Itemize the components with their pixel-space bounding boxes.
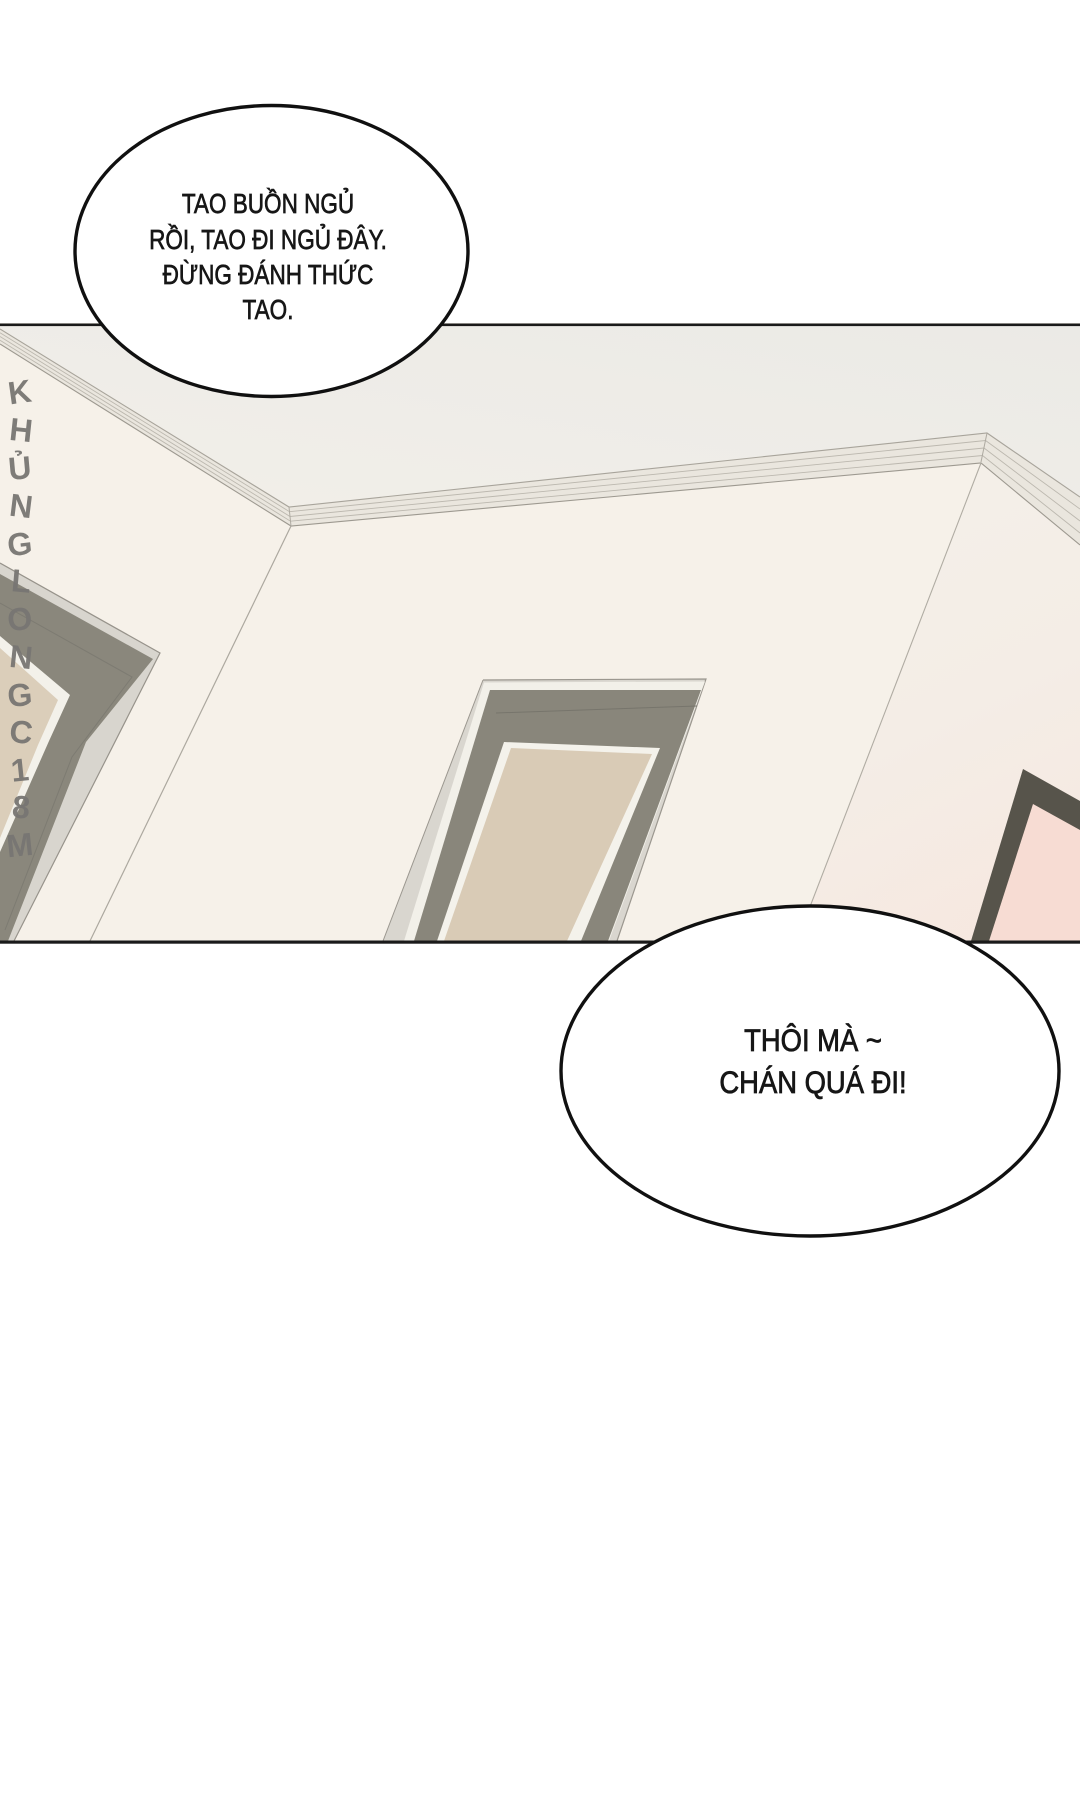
svg-text:N: N	[8, 487, 35, 526]
svg-text:8: 8	[11, 788, 32, 825]
svg-text:Ủ: Ủ	[7, 449, 33, 487]
svg-text:CHÁN QUÁ ĐI!: CHÁN QUÁ ĐI!	[719, 1065, 906, 1100]
svg-text:L: L	[10, 562, 33, 600]
svg-text:N: N	[8, 638, 35, 676]
svg-text:TAO BUỒN NGỦ: TAO BUỒN NGỦ	[182, 187, 354, 220]
svg-text:TAO.: TAO.	[243, 295, 294, 326]
svg-text:ĐỪNG ĐÁNH THỨC: ĐỪNG ĐÁNH THỨC	[163, 259, 374, 291]
svg-text:RỒI, TAO ĐI NGỦ ĐÂY.: RỒI, TAO ĐI NGỦ ĐÂY.	[149, 223, 387, 256]
svg-text:G: G	[6, 676, 34, 714]
svg-text:O: O	[5, 600, 34, 639]
svg-text:K: K	[6, 373, 34, 412]
svg-text:1: 1	[9, 751, 30, 789]
svg-text:M: M	[5, 826, 35, 865]
svg-text:G: G	[6, 525, 35, 563]
svg-text:H: H	[8, 411, 35, 449]
svg-text:THÔI MÀ ~: THÔI MÀ ~	[744, 1022, 882, 1058]
svg-text:C: C	[8, 713, 35, 751]
